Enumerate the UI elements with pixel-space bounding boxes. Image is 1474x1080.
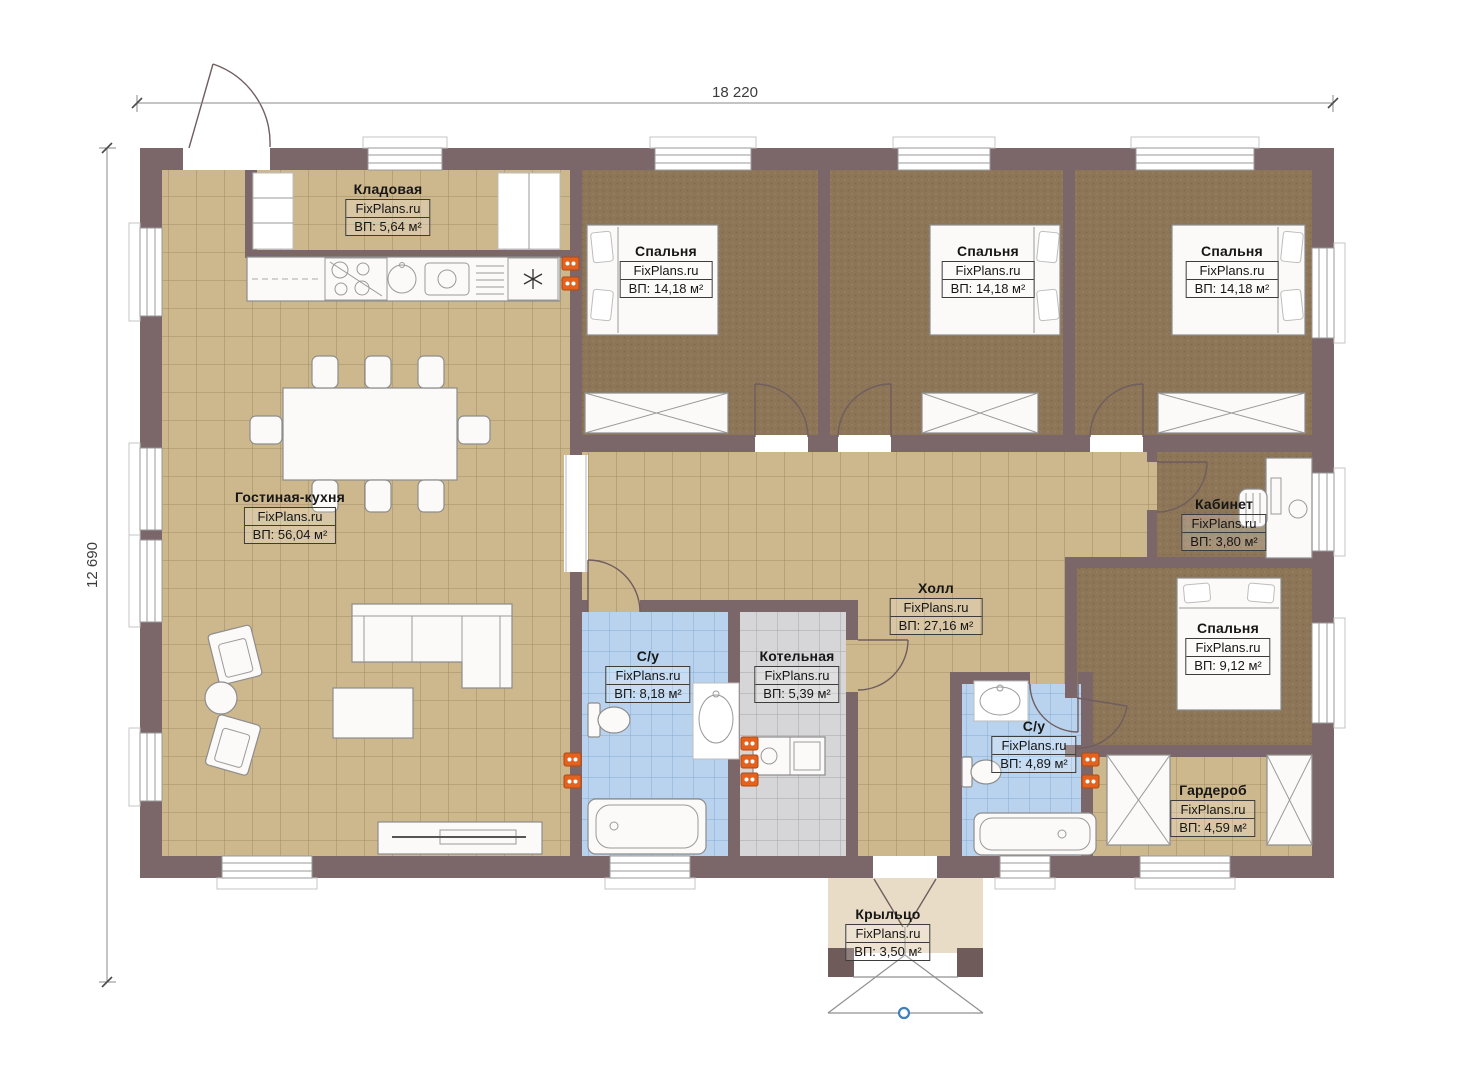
room-label-office: Кабинет FixPlans.ru ВП: 3,80 м² (1181, 496, 1266, 551)
room-info-box: FixPlans.ru ВП: 14,18 м² (620, 261, 713, 298)
window (650, 137, 756, 170)
room-area: ВП: 3,80 м² (1182, 533, 1265, 550)
room-label-wardrobe: Гардероб FixPlans.ru ВП: 4,59 м² (1170, 782, 1255, 837)
room-watermark: FixPlans.ru (1187, 262, 1278, 280)
room-watermark: FixPlans.ru (346, 200, 429, 218)
room-info-box: FixPlans.ru ВП: 4,59 м² (1170, 800, 1255, 837)
room-label-boiler: Котельная FixPlans.ru ВП: 5,39 м² (754, 648, 839, 703)
window (217, 856, 317, 889)
room-area: ВП: 27,16 м² (891, 617, 982, 634)
entrance-door-arc (213, 64, 270, 147)
room-watermark: FixPlans.ru (1171, 801, 1254, 819)
room-name: Спальня (1185, 620, 1270, 636)
wardrobe-cabinet (1158, 393, 1305, 433)
room-name: Спальня (942, 243, 1035, 259)
socket-icon (562, 277, 579, 290)
room-name: Крыльцо (845, 906, 930, 922)
room-name: Спальня (1186, 243, 1279, 259)
room-info-box: FixPlans.ru ВП: 8,18 м² (605, 666, 690, 703)
room-area: ВП: 9,12 м² (1186, 657, 1269, 674)
boiler-unit (753, 737, 825, 775)
room-info-box: FixPlans.ru ВП: 14,18 м² (942, 261, 1035, 298)
window (363, 137, 447, 170)
room-info-box: FixPlans.ru ВП: 4,89 м² (991, 736, 1076, 773)
room-label-bedroom4: Спальня FixPlans.ru ВП: 9,12 м² (1185, 620, 1270, 675)
room-info-box: FixPlans.ru ВП: 3,50 м² (845, 924, 930, 961)
room-info-box: FixPlans.ru ВП: 14,18 м² (1186, 261, 1279, 298)
socket-icon (1082, 753, 1099, 766)
room-area: ВП: 5,39 м² (755, 685, 838, 702)
socket-icon (741, 755, 758, 768)
window (1312, 243, 1345, 343)
kitchen-counter (247, 257, 560, 301)
porch-opening (873, 856, 937, 878)
bathtub (588, 799, 706, 854)
room-name: С/у (991, 718, 1076, 734)
socket-icon (564, 753, 581, 766)
dimension-left: 12 690 (84, 143, 116, 987)
socket-icon (1082, 775, 1099, 788)
room-area: ВП: 5,64 м² (346, 218, 429, 235)
room-label-bedroom1: Спальня FixPlans.ru ВП: 14,18 м² (620, 243, 713, 298)
room-label-hall: Холл FixPlans.ru ВП: 27,16 м² (890, 580, 983, 635)
room-area: ВП: 8,18 м² (606, 685, 689, 702)
socket-icon (564, 775, 581, 788)
window (893, 137, 995, 170)
window (995, 856, 1055, 889)
window (1131, 137, 1259, 170)
room-watermark: FixPlans.ru (755, 667, 838, 685)
room-name: Котельная (754, 648, 839, 664)
side-table (205, 682, 237, 714)
wardrobe-cabinet (1267, 755, 1312, 845)
window (129, 443, 162, 535)
window (1135, 856, 1235, 889)
room-label-porch: Крыльцо FixPlans.ru ВП: 3,50 м² (845, 906, 930, 961)
room-label-bath2: С/у FixPlans.ru ВП: 4,89 м² (991, 718, 1076, 773)
entry-marker-icon (899, 1008, 909, 1018)
room-watermark: FixPlans.ru (245, 508, 336, 526)
room-watermark: FixPlans.ru (621, 262, 712, 280)
dimension-width-label: 18 220 (712, 84, 758, 101)
window (1312, 468, 1345, 556)
room-area: ВП: 14,18 м² (1187, 280, 1278, 297)
room-area: ВП: 4,89 м² (992, 755, 1075, 772)
room-info-box: FixPlans.ru ВП: 3,80 м² (1181, 514, 1266, 551)
wardrobe-cabinet (1107, 755, 1170, 845)
bathtub (974, 813, 1096, 855)
porch-pillar (957, 948, 983, 977)
room-area: ВП: 56,04 м² (245, 526, 336, 543)
sink (974, 681, 1028, 721)
room-name: Кладовая (345, 181, 430, 197)
socket-icon (741, 773, 758, 786)
room-watermark: FixPlans.ru (943, 262, 1034, 280)
socket-icon (562, 257, 579, 270)
sink (693, 683, 739, 759)
window (605, 856, 695, 889)
room-name: Гардероб (1170, 782, 1255, 798)
room-info-box: FixPlans.ru ВП: 56,04 м² (244, 507, 337, 544)
room-area: ВП: 3,50 м² (846, 943, 929, 960)
wardrobe-cabinet (585, 393, 728, 433)
room-name: С/у (605, 648, 690, 664)
entrance-opening (183, 148, 270, 170)
room-info-box: FixPlans.ru ВП: 5,64 м² (345, 199, 430, 236)
wide-opening (564, 455, 588, 572)
wardrobe-cabinet (922, 393, 1038, 433)
room-name: Холл (890, 580, 983, 596)
room-watermark: FixPlans.ru (1186, 639, 1269, 657)
room-info-box: FixPlans.ru ВП: 9,12 м² (1185, 638, 1270, 675)
room-area: ВП: 14,18 м² (943, 280, 1034, 297)
window (129, 728, 162, 806)
room-label-bedroom3: Спальня FixPlans.ru ВП: 14,18 м² (1186, 243, 1279, 298)
room-label-living: Гостиная-кухня FixPlans.ru ВП: 56,04 м² (235, 489, 345, 544)
window (1312, 618, 1345, 728)
room-name: Кабинет (1181, 496, 1266, 512)
window (129, 223, 162, 321)
dimension-height-label: 12 690 (84, 542, 101, 588)
tv-stand (378, 822, 542, 854)
room-name: Спальня (620, 243, 713, 259)
room-watermark: FixPlans.ru (992, 737, 1075, 755)
socket-icon (741, 737, 758, 750)
floor-plan-page: 18 220 12 690 Кладовая FixPlans.ru ВП: 5… (0, 0, 1474, 1080)
room-watermark: FixPlans.ru (606, 667, 689, 685)
room-info-box: FixPlans.ru ВП: 27,16 м² (890, 598, 983, 635)
dimension-top: 18 220 (132, 84, 1338, 112)
room-info-box: FixPlans.ru ВП: 5,39 м² (754, 666, 839, 703)
room-watermark: FixPlans.ru (1182, 515, 1265, 533)
room-name: Гостиная-кухня (235, 489, 345, 505)
coffee-table (333, 688, 413, 738)
room-area: ВП: 14,18 м² (621, 280, 712, 297)
room-label-bedroom2: Спальня FixPlans.ru ВП: 14,18 м² (942, 243, 1035, 298)
window (129, 535, 162, 627)
entrance-door-leaf (189, 64, 213, 148)
room-area: ВП: 4,59 м² (1171, 819, 1254, 836)
room-watermark: FixPlans.ru (891, 599, 982, 617)
room-watermark: FixPlans.ru (846, 925, 929, 943)
room-label-storage: Кладовая FixPlans.ru ВП: 5,64 м² (345, 181, 430, 236)
room-label-bath1: С/у FixPlans.ru ВП: 8,18 м² (605, 648, 690, 703)
